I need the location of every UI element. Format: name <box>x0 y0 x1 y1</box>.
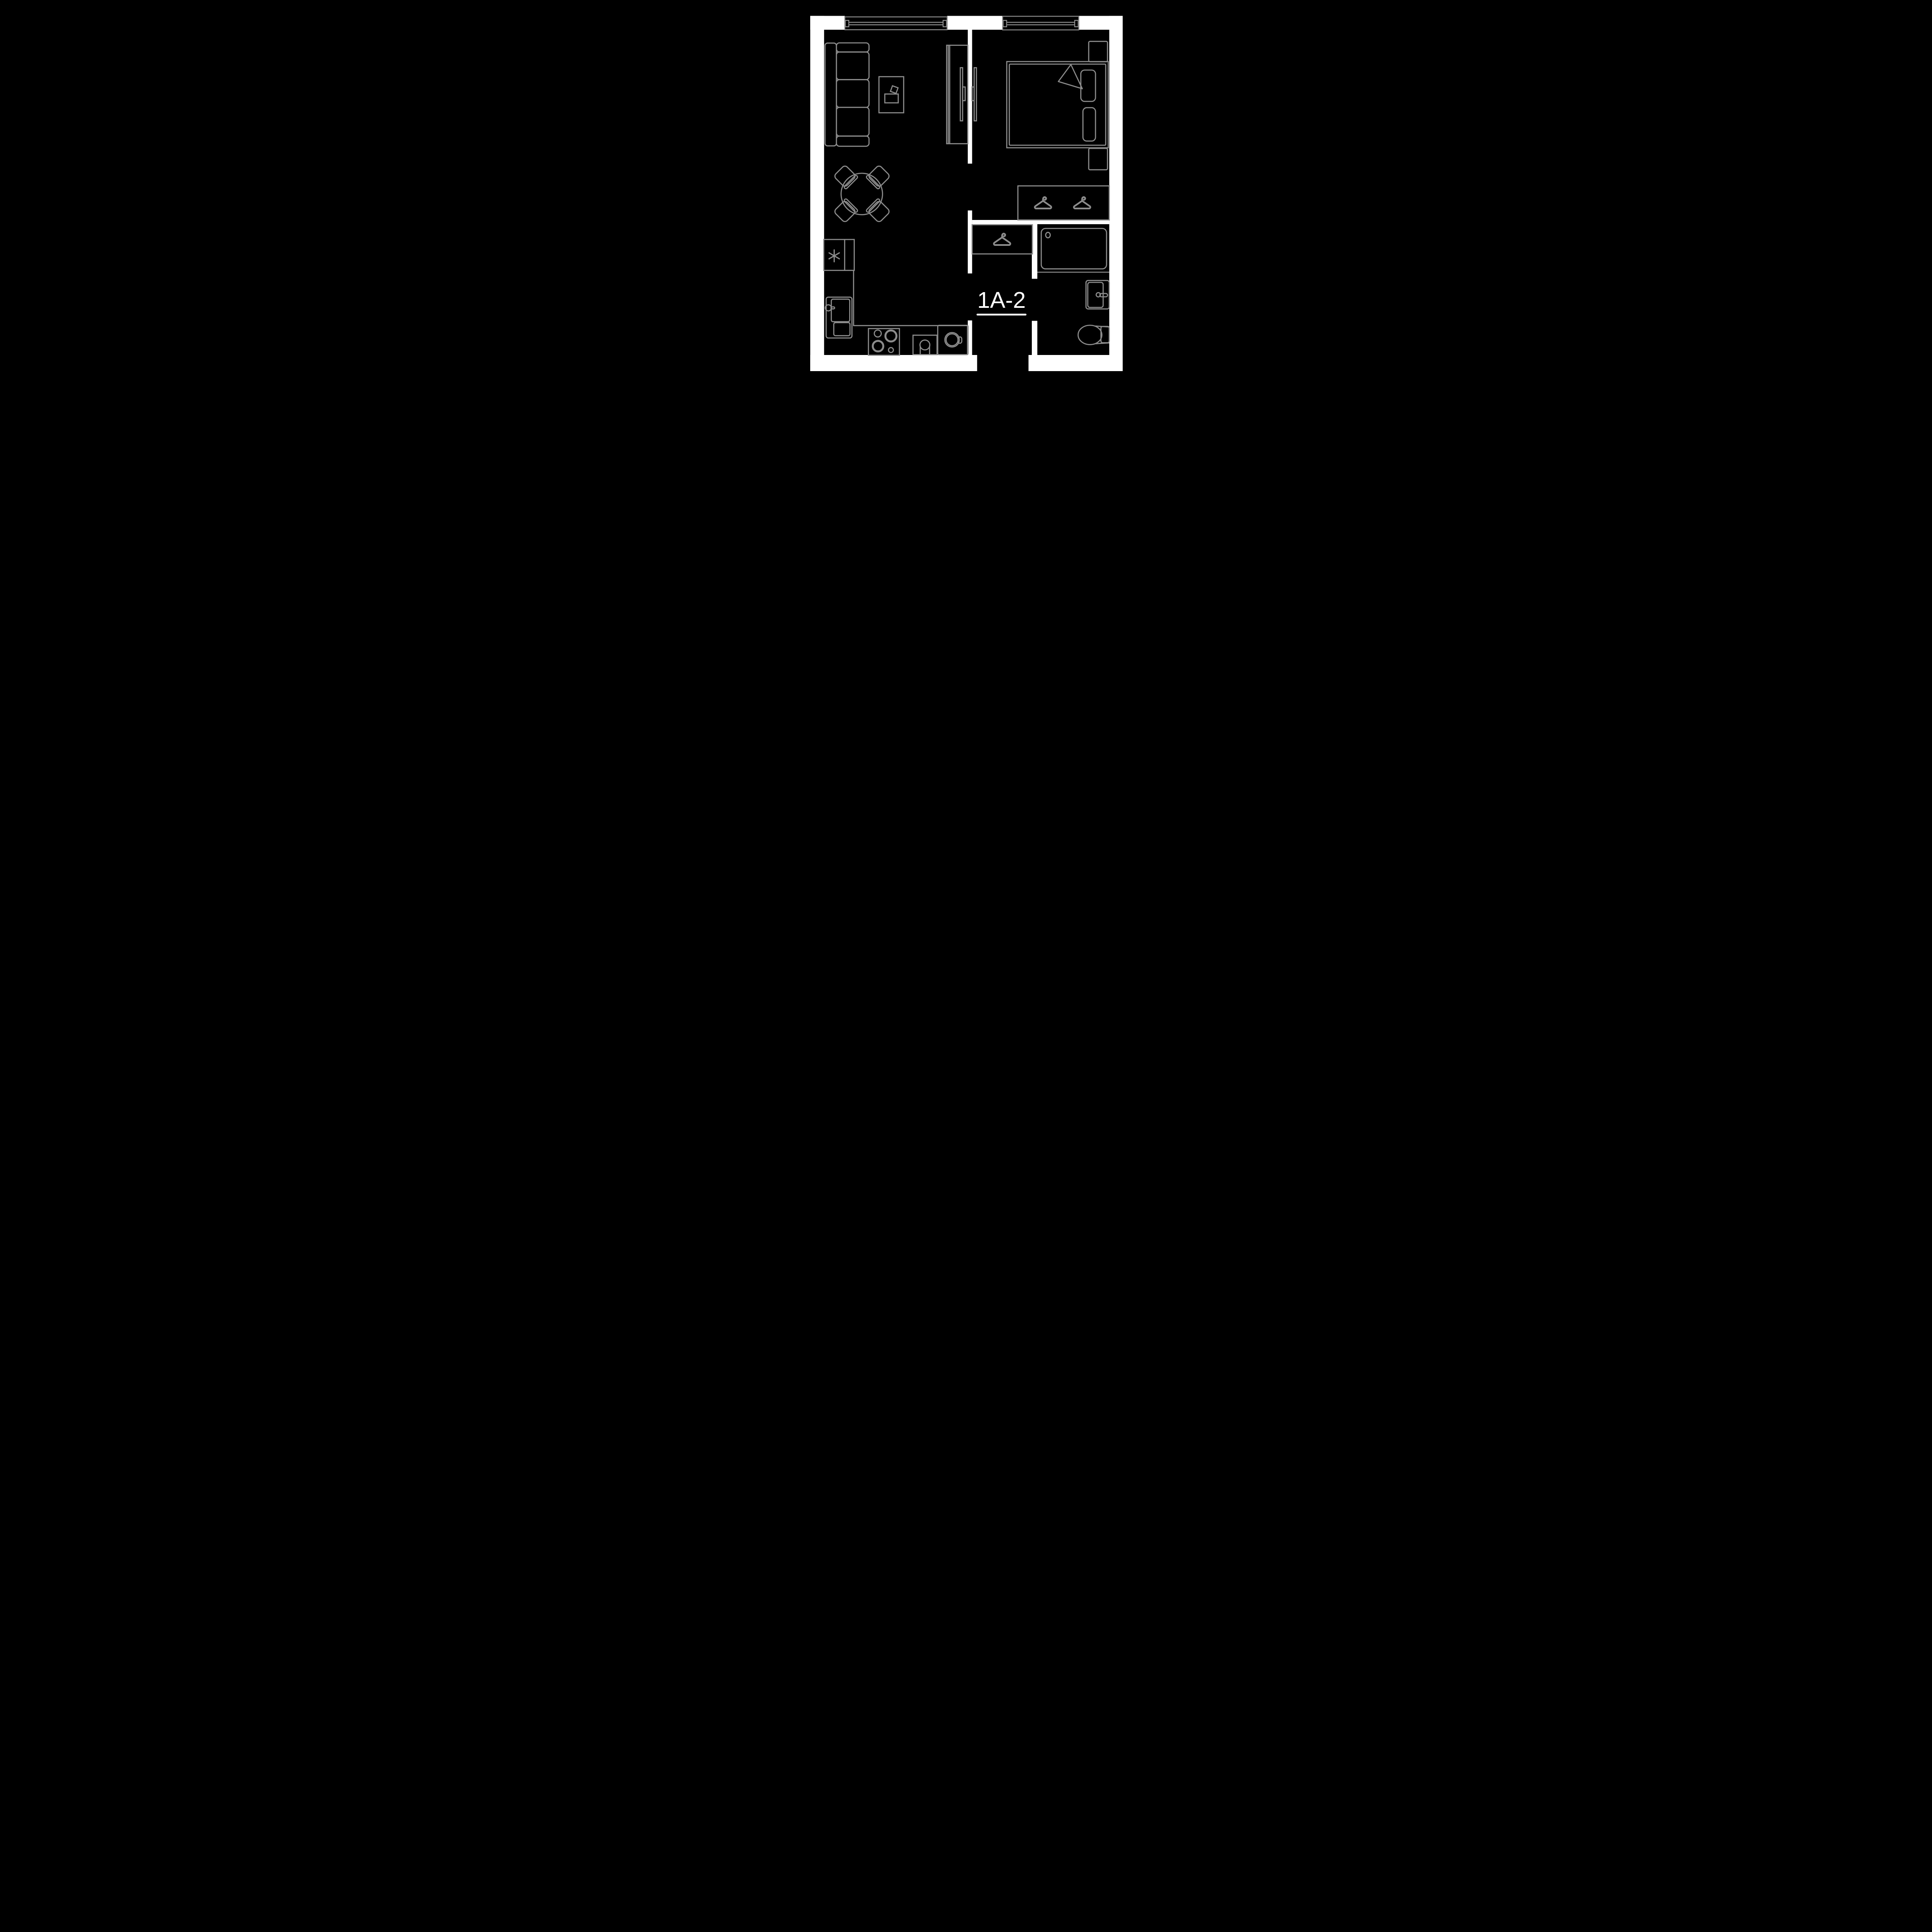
top-wall-middle <box>947 16 1003 30</box>
sofa-cushion <box>836 107 869 136</box>
sofa-cushion <box>836 52 869 79</box>
walls <box>810 16 1123 371</box>
hanger-icon <box>1074 197 1090 208</box>
hanger-icon <box>994 234 1011 245</box>
dining-set <box>833 164 891 223</box>
coffee-table <box>879 77 904 113</box>
nightstand <box>1089 148 1107 169</box>
hanger-icon <box>1035 197 1051 208</box>
sofa-armrest <box>836 136 869 146</box>
dining-chair <box>833 198 858 223</box>
sink-basin <box>831 299 850 322</box>
blanket-fold <box>1059 65 1083 89</box>
cooktop <box>868 329 899 355</box>
bathroom-wall-lower <box>1032 321 1037 355</box>
toilet <box>1078 325 1109 345</box>
sofa-cushion <box>836 80 869 107</box>
dining-chair <box>833 164 858 189</box>
dining-chair <box>866 198 891 223</box>
tv-mount-bracket <box>972 87 974 101</box>
bottom-wall-left <box>810 355 977 371</box>
sofa-armrest <box>836 43 869 52</box>
living-room-window <box>845 17 947 30</box>
living-room-tv <box>960 68 965 121</box>
double-bed <box>1007 62 1108 148</box>
kitchen-sink-cabinet <box>825 297 852 338</box>
refrigerator <box>824 239 854 270</box>
window-end-cap <box>1075 20 1078 27</box>
washer-drum <box>945 332 959 347</box>
sink-drainboard <box>834 323 850 336</box>
tv-mount-bracket <box>963 87 965 101</box>
bedroom-hallway-wall <box>972 220 1109 224</box>
washbasin <box>1086 281 1110 309</box>
burner <box>872 341 884 352</box>
fridge-asterisk-icon <box>829 250 839 262</box>
partition-wall-middle <box>968 211 972 273</box>
partition-wall-upper <box>968 30 972 163</box>
window-end-cap <box>943 20 946 27</box>
floor-plan-page: 1A-2 <box>773 0 1159 386</box>
bathtub <box>1041 228 1107 269</box>
sofa-backrest <box>825 43 836 146</box>
unit-label: 1A-2 <box>977 287 1027 315</box>
unit-label-text: 1A-2 <box>977 287 1026 313</box>
unit-label-underline <box>977 314 1027 315</box>
toilet-bowl <box>1078 325 1102 345</box>
sofa <box>825 43 869 146</box>
table-item-box <box>885 94 898 103</box>
small-sink <box>913 335 937 355</box>
window-end-cap <box>1003 20 1006 27</box>
dining-table <box>841 173 883 215</box>
washing-machine <box>938 325 968 355</box>
pillow <box>1083 108 1096 141</box>
window-end-cap <box>845 20 849 27</box>
tub-drain <box>1046 232 1050 238</box>
dining-chair <box>866 164 891 189</box>
faucet-lever <box>831 307 835 309</box>
left-wall <box>810 16 824 371</box>
bedroom-tv <box>972 68 976 121</box>
bottom-wall-right <box>1028 355 1123 371</box>
bedroom-wardrobe <box>1018 186 1109 220</box>
floor-plan-canvas: 1A-2 <box>773 0 1159 386</box>
bedroom-window <box>1003 16 1079 30</box>
mattress <box>1009 64 1106 145</box>
pillow <box>1081 70 1096 101</box>
burner <box>885 330 897 342</box>
hallway-closet <box>972 225 1032 254</box>
nightstand <box>1089 41 1107 62</box>
burner <box>874 330 881 337</box>
washer-door-handle <box>958 337 962 343</box>
burner <box>888 348 893 353</box>
kitchen-counter-edge <box>853 270 967 355</box>
right-wall <box>1109 16 1123 371</box>
table-item-small <box>890 86 898 93</box>
